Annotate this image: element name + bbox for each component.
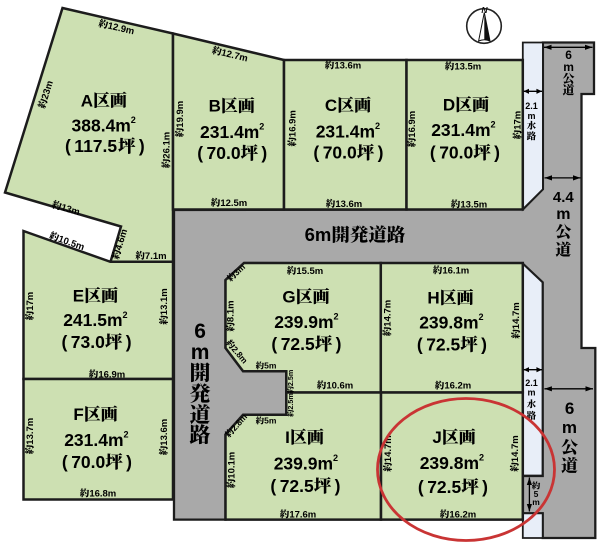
svg-text:16.1m: 16.1m (442, 265, 469, 276)
svg-text:72.5: 72.5 (426, 334, 460, 354)
svg-text:12.5m: 12.5m (220, 198, 247, 209)
svg-text:): ) (482, 477, 488, 497)
svg-text:N: N (481, 5, 488, 15)
svg-text:231.4m: 231.4m (200, 122, 259, 142)
svg-text:13.6m: 13.6m (335, 199, 362, 210)
svg-text:4.4: 4.4 (553, 189, 575, 206)
svg-text:10.1m: 10.1m (226, 452, 237, 479)
svg-text:(: ( (65, 136, 71, 156)
svg-text:H: H (427, 289, 439, 308)
svg-text:231.4m: 231.4m (431, 120, 490, 140)
svg-text:2: 2 (333, 453, 338, 463)
svg-text:m: m (528, 388, 536, 398)
svg-text:(: ( (430, 143, 436, 163)
svg-text:14.7m: 14.7m (382, 300, 393, 327)
svg-text:239.8m: 239.8m (419, 312, 478, 332)
svg-text:): ) (481, 334, 487, 354)
svg-text:17m: 17m (513, 111, 524, 130)
svg-text:16.2m: 16.2m (449, 509, 476, 520)
svg-text:2.1: 2.1 (525, 101, 538, 111)
svg-text:13.6m: 13.6m (334, 60, 361, 71)
svg-text:D: D (443, 96, 455, 115)
svg-text:19.9m: 19.9m (175, 101, 186, 128)
svg-text:2: 2 (131, 115, 136, 125)
svg-text:): ) (378, 143, 384, 163)
svg-text:E: E (73, 287, 84, 306)
svg-text:13.7m: 13.7m (25, 418, 36, 445)
svg-text:A: A (81, 91, 93, 110)
svg-text:): ) (126, 332, 132, 352)
svg-text:13.5m: 13.5m (460, 199, 487, 210)
svg-text:m: m (563, 60, 574, 74)
svg-text:2: 2 (479, 312, 484, 322)
svg-text:I: I (285, 428, 290, 447)
svg-text:231.4m: 231.4m (316, 121, 375, 141)
svg-text:72.5: 72.5 (280, 476, 314, 496)
svg-text:(: ( (313, 143, 319, 163)
svg-text:C: C (325, 96, 337, 115)
svg-text:m: m (528, 111, 536, 121)
svg-text:): ) (335, 476, 341, 496)
svg-text:14.7m: 14.7m (511, 302, 522, 329)
svg-text:16.2m: 16.2m (444, 381, 471, 392)
svg-text:(: ( (417, 334, 423, 354)
svg-text:70.0: 70.0 (207, 143, 241, 163)
svg-text:13.5m: 13.5m (454, 61, 481, 72)
svg-text:16.9m: 16.9m (98, 369, 125, 380)
svg-text:(: ( (418, 477, 424, 497)
svg-text:14.7m: 14.7m (510, 435, 521, 462)
svg-text:16.9m: 16.9m (407, 111, 418, 138)
svg-text:2: 2 (479, 453, 484, 463)
svg-text:2: 2 (334, 312, 339, 322)
svg-text:2: 2 (375, 121, 380, 131)
svg-text:m: m (191, 341, 210, 364)
svg-text:239.8m: 239.8m (420, 453, 479, 473)
svg-text:(: ( (271, 334, 277, 354)
svg-text:388.4m: 388.4m (72, 115, 131, 135)
svg-text:F: F (73, 405, 83, 424)
svg-text:): ) (126, 452, 132, 472)
svg-text:2: 2 (491, 120, 496, 130)
svg-text:70.0: 70.0 (71, 452, 105, 472)
svg-text:(: ( (62, 332, 68, 352)
svg-text:73.0: 73.0 (71, 332, 105, 352)
svg-text:): ) (261, 143, 267, 163)
svg-text:2.5m: 2.5m (286, 370, 295, 386)
svg-text:6m: 6m (305, 224, 332, 245)
svg-text:72.5: 72.5 (281, 334, 315, 354)
svg-text:231.4m: 231.4m (64, 430, 123, 450)
svg-text:): ) (494, 143, 500, 163)
svg-text:10.6m: 10.6m (326, 380, 353, 391)
svg-text:15.5m: 15.5m (296, 266, 323, 277)
svg-text:): ) (336, 334, 342, 354)
svg-text:241.5m: 241.5m (63, 310, 122, 330)
svg-text:239.9m: 239.9m (274, 453, 333, 473)
svg-text:6: 6 (194, 320, 206, 343)
svg-text:72.5: 72.5 (427, 477, 461, 497)
svg-text:117.5: 117.5 (74, 136, 117, 156)
svg-text:13.6m: 13.6m (159, 419, 170, 446)
svg-text:m: m (562, 418, 577, 437)
svg-text:239.9m: 239.9m (274, 312, 333, 332)
svg-text:70.0: 70.0 (323, 143, 357, 163)
svg-text:70.0: 70.0 (439, 143, 473, 163)
svg-text:G: G (282, 288, 295, 307)
svg-text:(: ( (270, 476, 276, 496)
svg-text:2.1: 2.1 (525, 378, 538, 388)
svg-text:2: 2 (123, 310, 128, 320)
svg-text:(: ( (197, 143, 203, 163)
svg-text:6: 6 (565, 399, 574, 418)
svg-text:2: 2 (124, 430, 129, 440)
svg-text:16.8m: 16.8m (89, 488, 116, 499)
svg-text:17m: 17m (25, 292, 36, 311)
svg-text:5m: 5m (264, 361, 277, 371)
svg-text:5m: 5m (264, 416, 277, 426)
svg-text:16.9m: 16.9m (287, 110, 298, 137)
svg-text:8.1m: 8.1m (226, 300, 237, 322)
svg-text:17.6m: 17.6m (289, 509, 316, 520)
svg-text:): ) (139, 136, 145, 156)
svg-text:7.1m: 7.1m (145, 251, 167, 262)
svg-text:2: 2 (259, 122, 264, 132)
svg-text:13.1m: 13.1m (159, 288, 170, 315)
svg-text:m: m (556, 206, 570, 223)
svg-text:2.5m: 2.5m (286, 393, 295, 409)
svg-text:(: ( (62, 452, 68, 472)
svg-text:B: B (209, 97, 221, 116)
svg-text:m: m (532, 497, 540, 507)
svg-text:J: J (432, 428, 441, 447)
svg-text:26.1m: 26.1m (161, 132, 172, 159)
